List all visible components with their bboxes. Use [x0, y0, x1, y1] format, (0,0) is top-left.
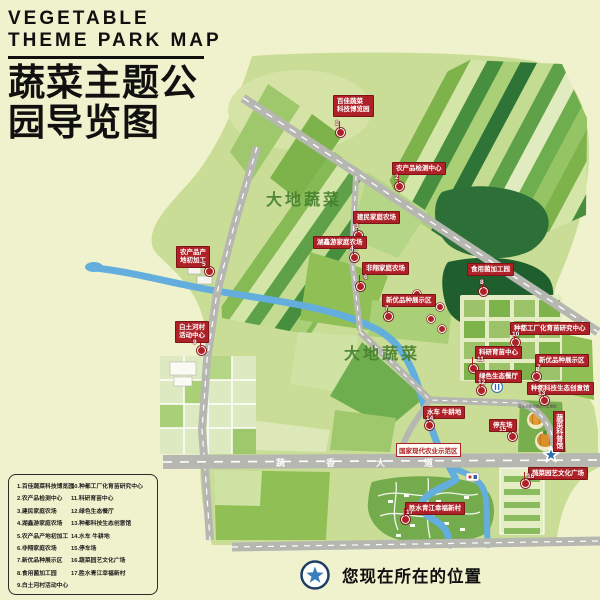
- you-are-here: 您现在所在的位置: [299, 559, 482, 591]
- title-chinese-line1: 蔬菜主题公: [8, 63, 222, 104]
- marker-label: 白土河村: [179, 324, 205, 332]
- legend-item: 7.新优品种展示区: [17, 555, 74, 567]
- legend-item: 2.农产品检测中心: [17, 493, 74, 505]
- legend-item: 6.非翔家庭农场: [17, 543, 74, 555]
- marker-pin: [350, 253, 359, 262]
- marker-box-13: 种都科技生态创意馆: [527, 382, 594, 395]
- road-name-char: 香: [326, 456, 335, 469]
- marker-number: 14: [426, 415, 433, 422]
- marker-box-8: 食用菌加工园: [467, 263, 514, 276]
- bus-stop-icon: [466, 473, 479, 481]
- marker-number: 1: [335, 120, 339, 127]
- marker-label: 农产品产: [180, 249, 206, 257]
- legend-item: 8.食用菌加工园: [17, 568, 74, 580]
- marker-number: 7: [385, 305, 389, 312]
- marker-pin: [540, 396, 549, 405]
- marker-number: 7: [537, 364, 541, 371]
- marker-pin: [508, 432, 517, 441]
- title-divider: [8, 56, 204, 59]
- marker-number: 15: [499, 426, 506, 433]
- marker-number: 6: [364, 274, 368, 281]
- marker-label: 湖鑫游家庭农场: [317, 239, 363, 247]
- marker-number: 2: [395, 174, 399, 181]
- legend-item: 11.科研育苗中心: [71, 493, 143, 505]
- marker-pin: [521, 479, 530, 488]
- you-are-here-label: 您现在所在的位置: [342, 563, 482, 587]
- marker-label: 种都工厂化育苗研究中心: [514, 325, 586, 333]
- road-name-char: 蔬: [276, 456, 285, 469]
- legend-box: 1.百佳蔬菜科技博览园 2.农产品检测中心 3.建民家庭农场 4.湖鑫游家庭农场…: [8, 474, 158, 595]
- legend-item: 3.建民家庭农场: [17, 506, 74, 518]
- marker-number: 17: [406, 509, 413, 516]
- region-label-dadishucai-1: 大地蔬菜: [266, 186, 342, 210]
- marker-number: 12: [478, 379, 485, 386]
- marker-pin: [479, 287, 488, 296]
- marker-number: 10: [512, 331, 519, 338]
- marker-number: 8: [480, 279, 484, 286]
- marker-number: 5: [202, 261, 206, 268]
- marker-box-2: 农产品检测中心: [392, 162, 446, 175]
- marker-label: 农产品检测中心: [396, 165, 442, 173]
- marker-box-17: 胜水青江幸福新村: [405, 502, 465, 515]
- marker-box-7b: 新优品种展示区: [535, 354, 589, 367]
- marker-label: 食用菌加工园: [471, 266, 510, 274]
- marker-label: 新优品种展示区: [386, 297, 432, 305]
- legend-item: 1.百佳蔬菜科技博览园: [17, 481, 74, 493]
- marker-pin: [336, 128, 345, 137]
- title-chinese-line2: 园导览图: [8, 103, 222, 144]
- road-name-char: 大: [376, 456, 385, 469]
- legend-item: 10.种都工厂化育苗研究中心: [71, 481, 143, 493]
- you-are-here-star-icon: [299, 559, 331, 591]
- title-block: VEGETABLE THEME PARK MAP 蔬菜主题公 园导览图: [8, 8, 222, 144]
- road-name-char: 道: [424, 456, 433, 469]
- site-dot: [427, 315, 435, 323]
- region-label-dadishucai-2: 大地蔬菜: [344, 340, 420, 364]
- marker-box-1: 百佳蔬菜 科技博览园: [333, 95, 374, 117]
- legend-item: 15.停车场: [71, 543, 143, 555]
- marker-label: 活动中心: [179, 332, 205, 340]
- marker-pin: [401, 515, 410, 524]
- marker-box-7a: 新优品种展示区: [382, 294, 436, 307]
- title-english-line1: VEGETABLE: [8, 8, 222, 30]
- marker-number: 4: [350, 245, 354, 252]
- marker-number: 13: [538, 390, 545, 397]
- marker-number: 9: [193, 339, 197, 346]
- marker-pin: [477, 386, 486, 395]
- marker-box-4: 湖鑫游家庭农场: [313, 236, 367, 249]
- marker-number: 16: [527, 473, 534, 480]
- marker-pin: [425, 421, 434, 430]
- legend-item: 5.农产品产地初加工: [17, 531, 74, 543]
- marker-label: 非翔家庭农场: [366, 265, 405, 273]
- marker-label: 建民家庭农场: [357, 214, 396, 222]
- marker-box-10: 种都工厂化育苗研究中心: [510, 322, 590, 335]
- marker-number: 11: [477, 356, 484, 363]
- restaurant-icon: [492, 382, 503, 393]
- marker-box-9: 白土河村 活动中心: [175, 321, 209, 343]
- sculpture-caption: 蔬菜大师浮雕及大型雕塑: [518, 404, 557, 409]
- marker-label: 科技博览园: [337, 106, 370, 114]
- marker-label: 百佳蔬菜: [337, 98, 370, 106]
- legend-item: 16.蔬菜园艺文化广场: [71, 555, 143, 567]
- marker-label: 科研育苗中心: [479, 349, 518, 357]
- national-demo-zone-label: 国家现代农业示范区: [396, 443, 461, 457]
- marker-number: 3: [355, 223, 359, 230]
- marker-pin: [205, 267, 214, 276]
- marker-pin: [395, 182, 404, 191]
- site-dot: [438, 325, 446, 333]
- legend-item: 17.胜水青江幸福新村: [71, 568, 143, 580]
- legend-column-1: 1.百佳蔬菜科技博览园 2.农产品检测中心 3.建民家庭农场 4.湖鑫游家庭农场…: [17, 481, 74, 593]
- science-ribbon-label: 蔬菜科普馆: [553, 411, 565, 452]
- marker-box-6: 非翔家庭农场: [362, 262, 409, 275]
- title-english-line2: THEME PARK MAP: [8, 30, 222, 52]
- legend-item: 4.湖鑫游家庭农场: [17, 518, 74, 530]
- marker-label: 新优品种展示区: [539, 357, 585, 365]
- legend-item: 13.种都科技生态创意馆: [71, 518, 143, 530]
- marker-label: 蔬菜园艺文化广场: [532, 470, 584, 478]
- legend-column-2: 10.种都工厂化育苗研究中心 11.科研育苗中心 12.绿色生态餐厅 13.种都…: [71, 481, 143, 580]
- marker-pin: [197, 346, 206, 355]
- legend-item: 9.白土河村活动中心: [17, 580, 74, 592]
- marker-pin: [356, 282, 365, 291]
- marker-pin: [384, 312, 393, 321]
- marker-box-3: 建民家庭农场: [353, 211, 400, 224]
- legend-item: 12.绿色生态餐厅: [71, 506, 143, 518]
- marker-pin: [532, 372, 541, 381]
- marker-box-16: 蔬菜园艺文化广场: [528, 467, 588, 480]
- marker-label: 胜水青江幸福新村: [409, 505, 461, 513]
- site-dot: [436, 303, 444, 311]
- legend-item: 14.水车 牛耕地: [71, 531, 143, 543]
- park-map-poster: VEGETABLE THEME PARK MAP 蔬菜主题公 园导览图 大地蔬菜…: [0, 0, 600, 600]
